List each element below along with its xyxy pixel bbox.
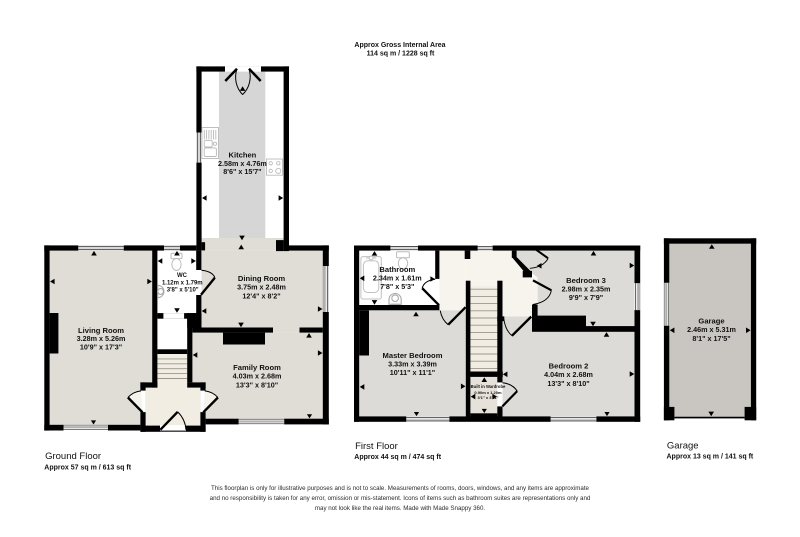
svg-text:0.90m x 1.20m: 0.90m x 1.20m <box>474 390 502 395</box>
svg-text:1.12m x 1.79m: 1.12m x 1.79m <box>162 281 203 287</box>
svg-text:Garage: Garage <box>667 440 699 451</box>
svg-text:3'8" x 5'10": 3'8" x 5'10" <box>167 288 199 294</box>
svg-text:Built in Wardrobe: Built in Wardrobe <box>471 384 506 389</box>
svg-text:8'1" x 17'5": 8'1" x 17'5" <box>692 334 730 343</box>
svg-text:may not look like the real ite: may not look like the real items. Made w… <box>315 505 486 512</box>
svg-text:WC: WC <box>177 273 188 279</box>
svg-text:12'4" x 8'2": 12'4" x 8'2" <box>242 291 280 300</box>
svg-text:Ground Floor: Ground Floor <box>45 451 101 462</box>
svg-text:13'3" x 8'10": 13'3" x 8'10" <box>236 380 278 389</box>
svg-text:10'9" x 17'3": 10'9" x 17'3" <box>80 343 122 352</box>
svg-text:First Floor: First Floor <box>355 441 398 452</box>
svg-text:10'11" x 11'1": 10'11" x 11'1" <box>390 368 435 377</box>
svg-text:This floorplan is only for ill: This floorplan is only for illustrative … <box>211 485 590 492</box>
svg-text:9'9" x 7'9": 9'9" x 7'9" <box>569 293 603 302</box>
svg-text:Approx 13 sq m / 141 sq ft: Approx 13 sq m / 141 sq ft <box>667 454 754 461</box>
svg-text:and no responsibility is taken: and no responsibility is taken for any e… <box>210 495 591 502</box>
svg-text:Approx 44 sq m / 474 sq ft: Approx 44 sq m / 474 sq ft <box>354 454 441 461</box>
svg-text:7'8" x 5'3": 7'8" x 5'3" <box>380 282 414 291</box>
svg-text:Approx Gross Internal Area: Approx Gross Internal Area <box>354 42 445 49</box>
svg-text:114 sq m / 1228 sq ft: 114 sq m / 1228 sq ft <box>367 50 435 57</box>
svg-text:3'1" x 3'11": 3'1" x 3'11" <box>477 395 498 400</box>
svg-text:13'3" x 8'10": 13'3" x 8'10" <box>547 379 589 388</box>
svg-text:8'6" x 15'7": 8'6" x 15'7" <box>223 167 261 176</box>
svg-text:Approx 57 sq m / 613 sq ft: Approx 57 sq m / 613 sq ft <box>44 465 131 472</box>
